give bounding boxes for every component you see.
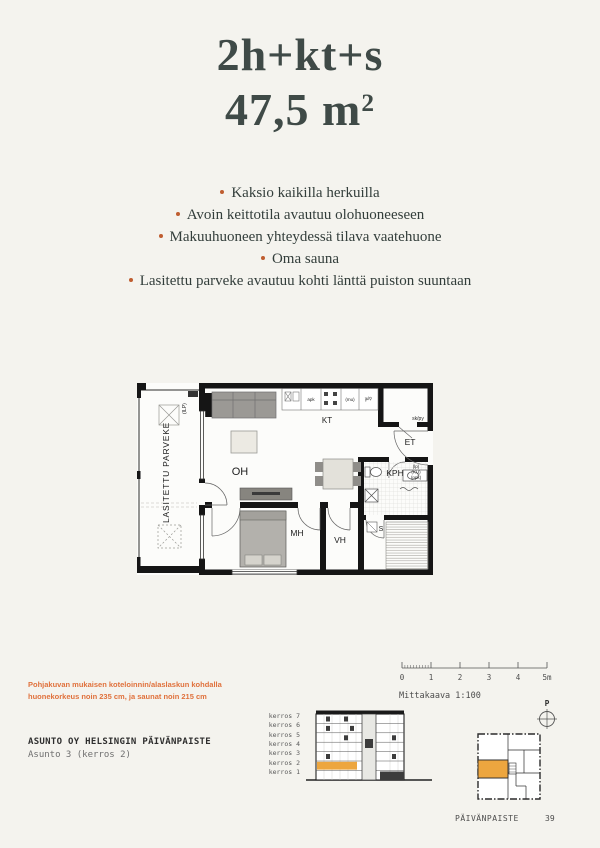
floor-labels: kerros 7 kerros 6 kerros 5 kerros 4 kerr… [258,712,300,777]
scale-tick: 3 [487,673,492,682]
building-section: kerros 7 kerros 6 kerros 5 kerros 4 kerr… [258,708,436,788]
floor-plan: OH KT ET KPH MH VH S sk/py LASITETTU PAR… [137,383,433,575]
footer-project-name: PÄIVÄNPAISTE [455,814,519,823]
bullet-dot-icon [220,190,224,194]
floor-label: kerros 6 [258,721,300,730]
bullet-dot-icon [261,256,265,260]
north-label: P [545,699,550,708]
building-elevation [304,708,436,788]
coffee-table [231,431,257,453]
stairwell-icon [509,763,516,774]
bedroom-label: MH [290,528,303,538]
ceiling-height-footnote: Pohjakuvan mukaisen koteloinnin/alaslask… [28,679,222,703]
scale-label: Mittakaava 1:100 [399,691,481,701]
apartment-area: 47,5 m2 [0,79,600,134]
project-info: ASUNTO OY HELSINGIN PÄIVÄNPAISTE Asunto … [28,737,211,760]
bullet-dot-icon [129,278,133,282]
scale-tick: 1 [429,673,434,682]
heat-pump-label: (ILP) [182,403,188,414]
page-title: 2h+kt+s 47,5 m2 [0,30,600,134]
heat-pump-unit [188,391,198,397]
tv-stand [240,488,292,500]
brochure-page: 2h+kt+s 47,5 m2 Kaksio kaikilla herkuill… [0,0,600,848]
scale-tick: 5m [542,673,552,682]
scale-tick: 0 [400,673,405,682]
superscript-2: 2 [361,89,375,117]
footer-page-number: 39 [545,814,555,823]
floor-drain-label: (lp) [413,464,420,469]
apartment-type: 2h+kt+s [0,30,600,79]
list-item: Kaksio kaikilla herkuilla [0,182,600,204]
floor-label: kerros 4 [258,740,300,749]
highlight-list: Kaksio kaikilla herkuilla Avoin keittoti… [0,182,600,292]
kitchen-label: KT [322,416,332,425]
roof-slab [316,711,404,715]
toilet-icon [365,467,370,477]
dishwasher-label: apk [307,397,315,402]
list-item: Avoin keittotila avautuu olohuoneeseen [0,204,600,226]
bullet-dot-icon [159,234,163,238]
scale-tick: 2 [458,673,463,682]
scale-tick: 4 [516,673,521,682]
sauna-label: S [379,526,384,533]
north-arrow: P [533,697,561,731]
utility-closet-label: sk/py [412,416,424,422]
bed [240,511,286,567]
apartment-id: Asunto 3 (kerros 2) [28,750,211,760]
highlighted-floor-bar [317,762,357,770]
closet-label: VH [334,535,346,545]
scale-bar: 0 1 2 3 4 5m [399,659,557,685]
balcony-label: LASITETTU PARVEKE [161,422,171,523]
microwave-label: (mu) [345,397,355,402]
floor-label: kerros 1 [258,768,300,777]
bullet-dot-icon [176,212,180,216]
sofa [212,392,276,418]
list-item: Makuuhuoneen yhteydessä tilava vaatehuon… [0,226,600,248]
floor-label: kerros 7 [258,712,300,721]
list-item: Oma sauna [0,248,600,270]
floor-label: kerros 3 [258,749,300,758]
hallway-label: ET [405,437,416,447]
list-item: Lasitettu parveke avautuu kohti länttä p… [0,270,600,292]
floor-label: kerros 2 [258,759,300,768]
company-name: ASUNTO OY HELSINGIN PÄIVÄNPAISTE [28,737,211,747]
floor-label: kerros 5 [258,731,300,740]
kitchen-counter [282,389,378,411]
bathroom-label: KPH [386,468,403,478]
living-room-label: OH [232,466,249,478]
highlighted-unit [478,760,508,778]
washer-label: (ppk) [411,475,422,480]
dryer-label: (KU) [411,470,421,475]
site-plan [474,731,546,803]
